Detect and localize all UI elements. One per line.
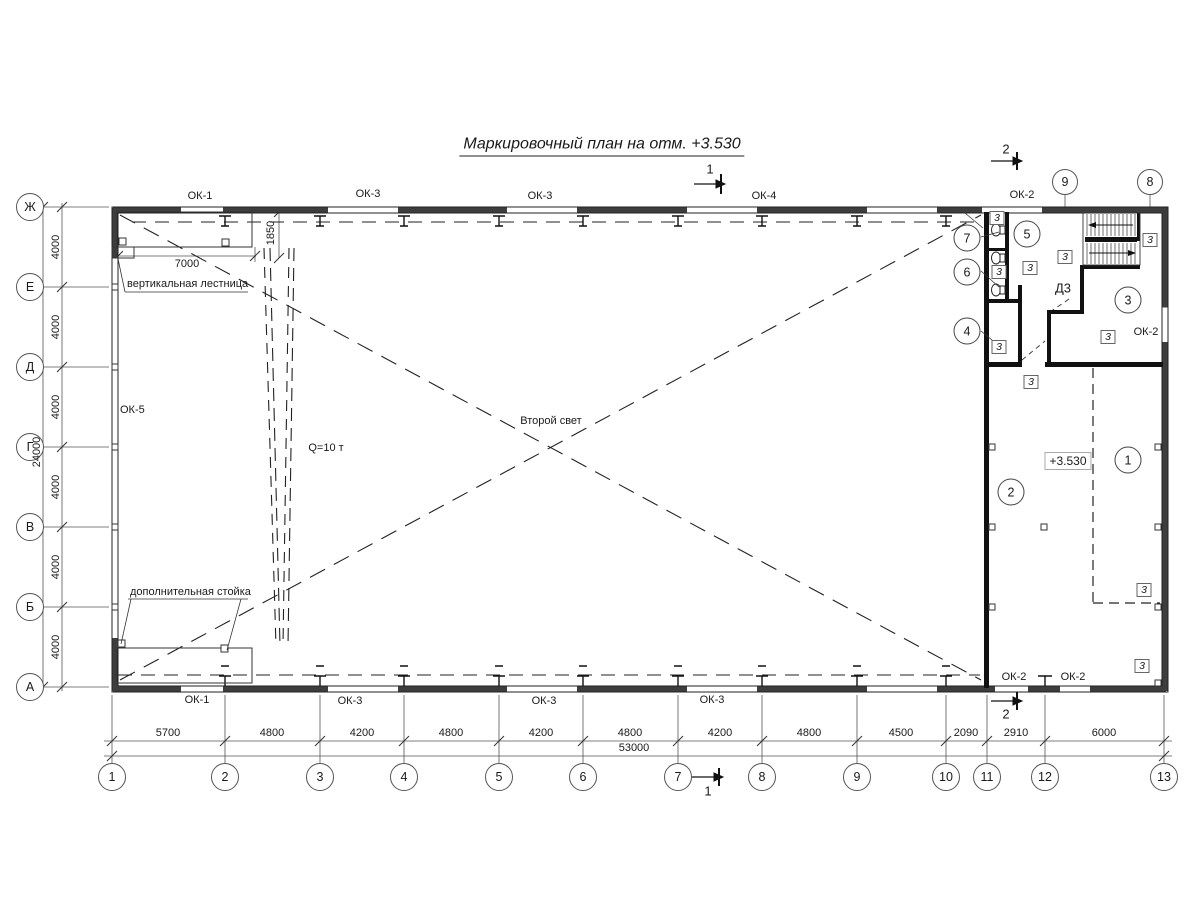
window-label-right: ОК-2 <box>1134 326 1159 338</box>
top-ref-bubble-9: 9 <box>1052 169 1078 195</box>
column-bubble-12: 12 <box>1031 763 1059 791</box>
floor-plan-canvas: Маркировочный план на отм. +3.530 123456… <box>0 0 1200 900</box>
dim-bottom-1: 4800 <box>260 727 284 739</box>
dim-bottom-11: 6000 <box>1092 727 1116 739</box>
dim-left-0: 4000 <box>50 235 62 259</box>
vertical-ladder-label: вертикальная лестница <box>127 278 248 290</box>
dim-bottom-2: 4200 <box>350 727 374 739</box>
column-bubble-9: 9 <box>843 763 871 791</box>
door-mark-7: 3 <box>1024 375 1039 389</box>
column-bubble-8: 8 <box>748 763 776 791</box>
dim-platform-width: 7000 <box>175 258 199 270</box>
room-number-6: 6 <box>954 259 981 286</box>
row-bubble-А: А <box>16 673 44 701</box>
window-label-bottom-3: ОК-3 <box>700 694 725 706</box>
window-label-top-0: ОК-1 <box>188 190 213 202</box>
dim-bottom-10: 2910 <box>1004 727 1028 739</box>
door-mark-0: 3 <box>990 211 1005 225</box>
row-bubble-Ж: Ж <box>16 193 44 221</box>
dim-left-4: 4000 <box>50 555 62 579</box>
mezzanine-opening-dashed <box>1093 368 1160 603</box>
dim-left-1: 4000 <box>50 315 62 339</box>
window-label-left: ОК-5 <box>120 404 145 416</box>
window-label-top-2: ОК-3 <box>528 190 553 202</box>
dim-bottom-7: 4800 <box>797 727 821 739</box>
second-light-label: Второй свет <box>520 415 581 427</box>
dim-bottom-total: 53000 <box>619 742 650 754</box>
door-mark-3: 3 <box>1058 250 1073 264</box>
room-number-1: 1 <box>1115 447 1142 474</box>
top-ref-bubble-8: 8 <box>1137 169 1163 195</box>
window-label-bottom-0: ОК-1 <box>185 694 210 706</box>
door-label: Д3 <box>1055 281 1071 296</box>
window-label-bottom-right-0: ОК-2 <box>1002 671 1027 683</box>
dim-bottom-5: 4800 <box>618 727 642 739</box>
door-mark-9: 3 <box>1135 659 1150 673</box>
row-bubble-Е: Е <box>16 273 44 301</box>
dim-bottom-8: 4500 <box>889 727 913 739</box>
leader-lines <box>117 213 1004 650</box>
room-number-3: 3 <box>1115 287 1142 314</box>
room-number-4: 4 <box>954 318 981 345</box>
dim-left-2: 4000 <box>50 395 62 419</box>
dim-left-5: 4000 <box>50 635 62 659</box>
column-bubble-5: 5 <box>485 763 513 791</box>
drawing-title: Маркировочный план на отм. +3.530 <box>459 136 744 157</box>
window-label-top-4: ОК-2 <box>1010 189 1035 201</box>
column-bubble-1: 1 <box>98 763 126 791</box>
section1-top-number: 1 <box>706 162 713 177</box>
column-bubble-2: 2 <box>211 763 239 791</box>
window-label-bottom-1: ОК-3 <box>338 695 363 707</box>
dim-bottom-0: 5700 <box>156 727 180 739</box>
door-mark-1: 3 <box>992 265 1007 279</box>
section1-bottom-number: 1 <box>704 784 711 799</box>
column-bubble-7: 7 <box>664 763 692 791</box>
dim-ladder-offset: 1850 <box>265 221 277 245</box>
toilet-fixtures <box>992 224 1006 296</box>
dim-left-total: 24000 <box>31 437 43 468</box>
row-bubble-В: В <box>16 513 44 541</box>
window-label-bottom-right-1: ОК-2 <box>1061 671 1086 683</box>
crane-capacity-label: Q=10 т <box>308 442 343 454</box>
extra-post-label: дополнительная стойка <box>130 586 251 598</box>
column-bubble-13: 13 <box>1150 763 1178 791</box>
dim-bottom-9: 2090 <box>954 727 978 739</box>
door-mark-4: 3 <box>1143 233 1158 247</box>
dim-bottom-6: 4200 <box>708 727 732 739</box>
row-bubble-Б: Б <box>16 593 44 621</box>
door-mark-5: 3 <box>992 340 1007 354</box>
dim-bottom-4: 4200 <box>529 727 553 739</box>
column-bubble-10: 10 <box>932 763 960 791</box>
elevation-mark: +3.530 <box>1044 452 1091 470</box>
column-bubble-3: 3 <box>306 763 334 791</box>
section2-top-number: 2 <box>1002 142 1009 157</box>
dim-left-3: 4000 <box>50 475 62 499</box>
window-label-top-3: ОК-4 <box>752 190 777 202</box>
door-mark-8: 3 <box>1137 583 1152 597</box>
door-mark-6: 3 <box>1101 330 1116 344</box>
column-bubble-11: 11 <box>973 763 1001 791</box>
room-number-7: 7 <box>954 225 981 252</box>
column-bubble-4: 4 <box>390 763 418 791</box>
column-bubble-6: 6 <box>569 763 597 791</box>
room-number-5: 5 <box>1014 221 1041 248</box>
room-number-2: 2 <box>998 479 1025 506</box>
window-label-bottom-2: ОК-3 <box>532 695 557 707</box>
section2-bottom-number: 2 <box>1002 707 1009 722</box>
column-symbols <box>219 216 1052 686</box>
window-label-top-1: ОК-3 <box>356 188 381 200</box>
dim-bottom-3: 4800 <box>439 727 463 739</box>
door-mark-2: 3 <box>1023 261 1038 275</box>
row-bubble-Д: Д <box>16 353 44 381</box>
